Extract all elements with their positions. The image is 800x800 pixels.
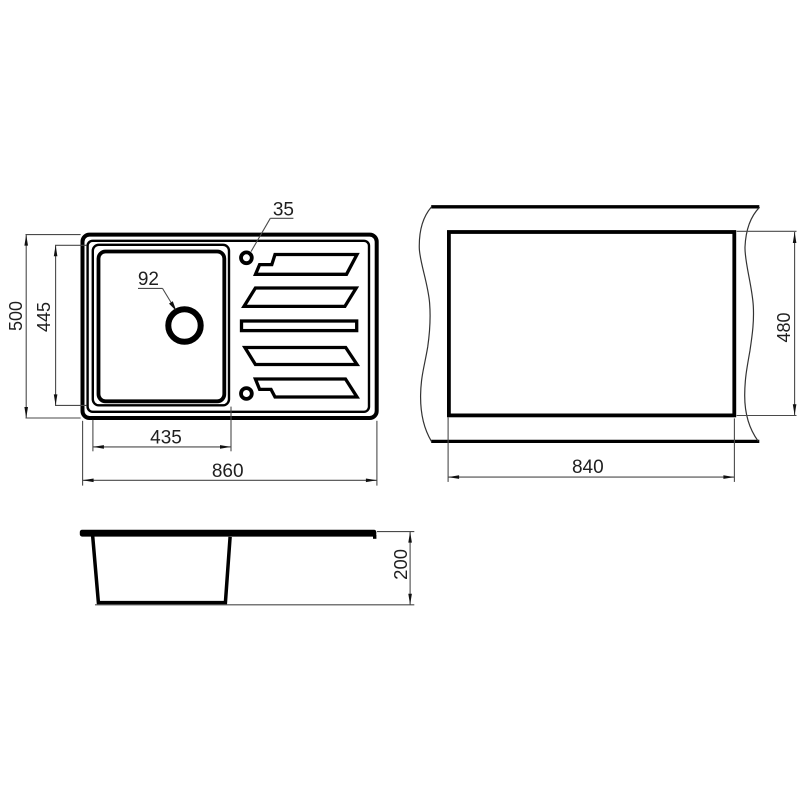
svg-text:840: 840: [572, 457, 604, 478]
svg-text:35: 35: [273, 199, 294, 220]
svg-text:860: 860: [212, 461, 244, 482]
svg-text:500: 500: [6, 301, 26, 331]
svg-text:435: 435: [150, 428, 182, 449]
svg-text:480: 480: [774, 312, 794, 342]
svg-text:445: 445: [34, 302, 54, 332]
svg-text:200: 200: [390, 549, 411, 580]
svg-text:92: 92: [138, 269, 159, 290]
